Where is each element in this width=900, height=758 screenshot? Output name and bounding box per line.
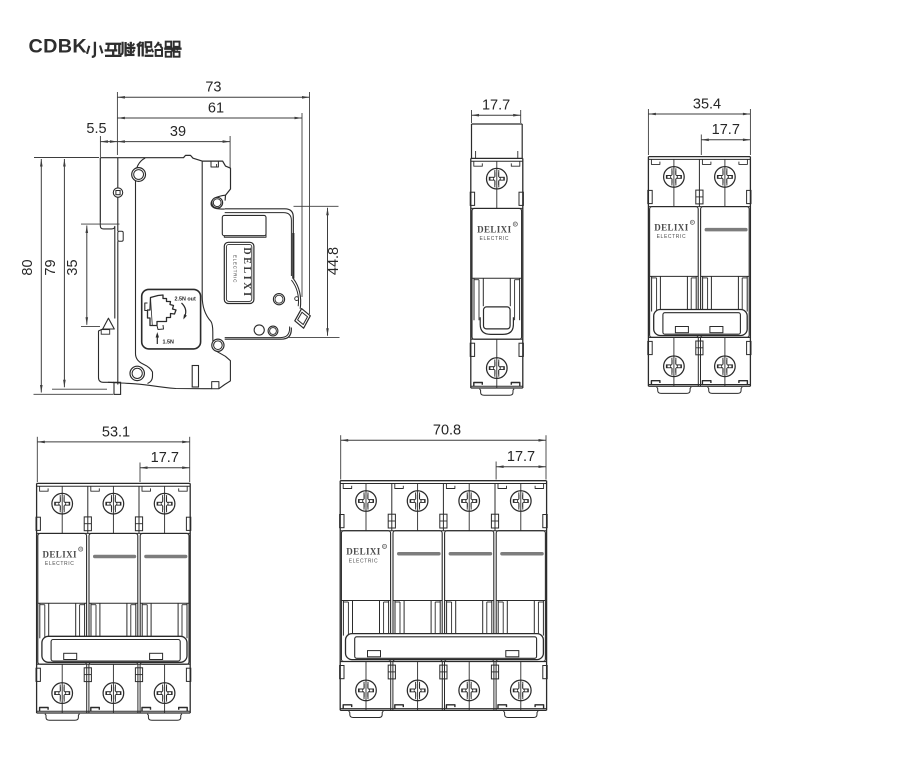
svg-text:35: 35 <box>65 259 81 275</box>
svg-text:35.4: 35.4 <box>693 96 721 112</box>
svg-text:ELECTRIC: ELECTRIC <box>45 561 75 567</box>
svg-text:17.7: 17.7 <box>151 450 179 466</box>
svg-text:DELIXI: DELIXI <box>654 223 689 233</box>
svg-text:80: 80 <box>20 259 36 275</box>
svg-text:1.5N: 1.5N <box>163 340 174 346</box>
svg-text:ELECTRIC: ELECTRIC <box>480 236 510 242</box>
svg-text:70.8: 70.8 <box>433 423 461 439</box>
svg-text:CDBK: CDBK <box>29 36 88 58</box>
svg-text:DELIXI: DELIXI <box>346 547 381 557</box>
svg-text:5.5: 5.5 <box>86 121 106 137</box>
svg-text:17.7: 17.7 <box>482 98 510 114</box>
svg-text:79: 79 <box>43 259 59 275</box>
svg-text:17.7: 17.7 <box>507 449 535 465</box>
svg-text:73: 73 <box>205 80 221 96</box>
svg-text:ELECTRIC: ELECTRIC <box>657 234 687 240</box>
svg-text:39: 39 <box>170 124 186 140</box>
svg-text:17.7: 17.7 <box>712 122 740 138</box>
svg-text:DELIXI: DELIXI <box>241 247 252 298</box>
svg-text:ELECTRIC: ELECTRIC <box>349 558 379 564</box>
svg-text:61: 61 <box>208 101 224 117</box>
svg-text:DELIXI: DELIXI <box>477 224 512 234</box>
svg-text:53.1: 53.1 <box>102 424 130 440</box>
svg-text:2.5N out: 2.5N out <box>175 297 196 303</box>
svg-text:DELIXI: DELIXI <box>42 549 77 559</box>
svg-text:ELECTRIC: ELECTRIC <box>233 255 238 283</box>
svg-text:44.8: 44.8 <box>326 247 342 275</box>
